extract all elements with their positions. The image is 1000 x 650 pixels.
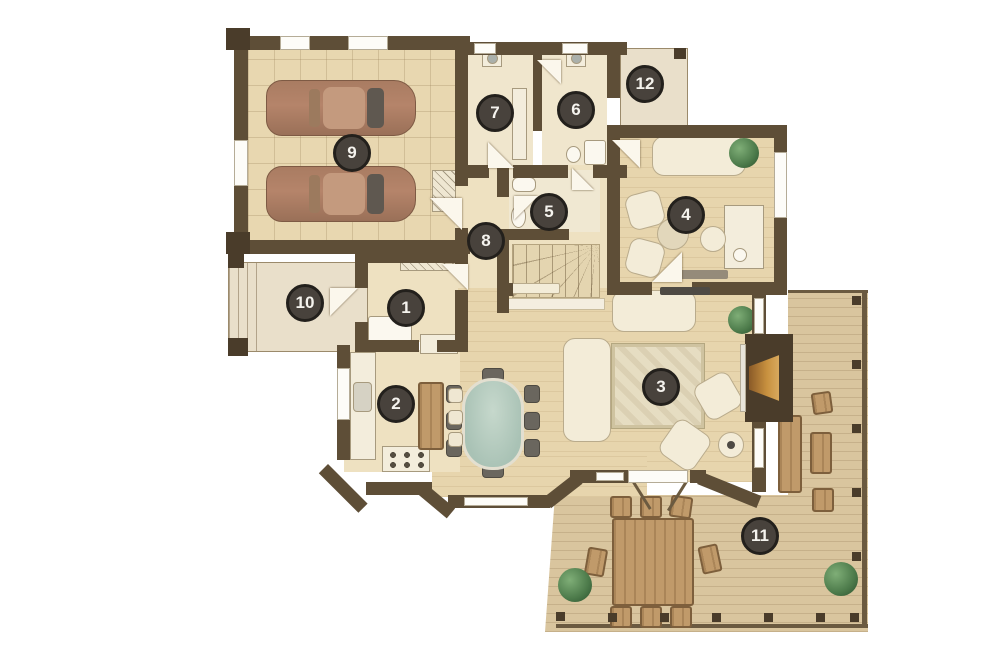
- floor-plan: 123456789101112: [0, 0, 1000, 650]
- outdoor-chair: [670, 606, 692, 628]
- deck-post: [852, 552, 861, 561]
- car-1: [266, 80, 416, 136]
- deck-post: [816, 613, 825, 622]
- car-roof: [323, 87, 365, 129]
- loveseat: [612, 290, 696, 332]
- outdoor-side-table: [812, 488, 834, 512]
- deck-post: [764, 613, 773, 622]
- deck-edge: [862, 290, 867, 628]
- wall-segment: [497, 283, 513, 296]
- deck-post: [850, 613, 859, 622]
- wall-segment: [355, 250, 368, 288]
- window: [754, 428, 764, 468]
- door: [652, 252, 682, 282]
- wall-segment: [513, 165, 568, 178]
- deck-post: [852, 488, 861, 497]
- car-rear-window: [309, 89, 320, 127]
- door: [572, 168, 594, 190]
- room-badge-8: 8: [467, 222, 505, 260]
- bathroom-sink: [512, 177, 536, 192]
- room-badge-12: 12: [626, 65, 664, 103]
- kitchen-island: [418, 382, 444, 450]
- room-badge-11: 11: [741, 517, 779, 555]
- window: [474, 43, 496, 54]
- car-roof: [323, 173, 365, 215]
- dining-table: [462, 378, 524, 470]
- outdoor-bench: [778, 415, 802, 493]
- dining-chair: [524, 412, 540, 430]
- window: [348, 36, 388, 50]
- plant: [824, 562, 858, 596]
- deck-post: [556, 612, 565, 621]
- wall-segment: [455, 165, 489, 178]
- plant: [729, 138, 759, 168]
- console-table: [676, 270, 728, 279]
- deck-edge: [556, 624, 868, 628]
- dining-chair: [524, 439, 540, 457]
- dining-chair: [524, 385, 540, 403]
- car-windshield: [367, 88, 384, 128]
- porch-post: [674, 48, 686, 59]
- window: [596, 472, 624, 481]
- room-badge-10: 10: [286, 284, 324, 322]
- window: [754, 298, 764, 334]
- wall-segment: [437, 340, 468, 352]
- side-table-decor: [727, 441, 735, 449]
- plant: [558, 568, 592, 602]
- console-shelf: [506, 283, 560, 294]
- outdoor-chair: [810, 432, 832, 474]
- window: [774, 152, 787, 218]
- wall-segment: [607, 170, 620, 295]
- stair-landing: [503, 298, 605, 310]
- deck-post: [660, 613, 669, 622]
- french-door-opening: [628, 470, 688, 483]
- bar-stool: [448, 432, 463, 447]
- room-badge-2: 2: [377, 385, 415, 423]
- deck-post: [712, 613, 721, 622]
- deck-post: [852, 424, 861, 433]
- outdoor-chair: [610, 496, 632, 518]
- door: [488, 142, 514, 168]
- deck-post: [608, 613, 617, 622]
- window: [280, 36, 310, 50]
- door: [442, 264, 468, 290]
- bar-stool: [448, 388, 463, 403]
- wall-segment: [455, 250, 468, 264]
- desk-chair: [700, 226, 726, 252]
- wall-segment: [607, 42, 620, 98]
- room-badge-9: 9: [333, 134, 371, 172]
- shower: [584, 140, 606, 165]
- wall-post: [226, 232, 250, 254]
- room-badge-1: 1: [387, 289, 425, 327]
- room-badge-7: 7: [476, 94, 514, 132]
- bar-stool: [448, 410, 463, 425]
- desk-lamp: [733, 248, 747, 262]
- window: [562, 43, 588, 54]
- wall-post: [228, 254, 244, 268]
- door: [537, 60, 561, 84]
- tv-console: [660, 287, 710, 295]
- car-windshield: [367, 174, 384, 214]
- deck-post: [852, 296, 861, 305]
- door: [612, 140, 640, 168]
- room-badge-3: 3: [642, 368, 680, 406]
- fireplace-hearth: [740, 344, 746, 412]
- outdoor-chair: [669, 495, 694, 520]
- kitchen-sink: [353, 382, 372, 412]
- wall-segment: [497, 229, 569, 240]
- cabinet: [512, 88, 527, 160]
- deck-edge: [788, 290, 868, 293]
- wall-segment: [455, 36, 468, 186]
- door: [330, 288, 358, 316]
- outdoor-chair: [640, 606, 662, 628]
- outdoor-dining-table: [612, 518, 694, 606]
- wall-post: [226, 28, 250, 50]
- window: [464, 497, 528, 506]
- car-rear-window: [309, 175, 320, 213]
- sink: [566, 146, 581, 163]
- sofa: [563, 338, 611, 442]
- wall-segment: [497, 165, 509, 197]
- wall-post: [228, 338, 248, 356]
- door: [430, 198, 462, 230]
- window: [234, 140, 248, 186]
- wall-segment: [355, 340, 419, 352]
- room-badge-6: 6: [557, 91, 595, 129]
- room-badge-4: 4: [667, 196, 705, 234]
- car-2: [266, 166, 416, 222]
- wall-segment: [607, 125, 787, 138]
- wall-segment: [355, 250, 468, 263]
- deck-post: [852, 360, 861, 369]
- outdoor-chair: [811, 391, 834, 416]
- room-badge-5: 5: [530, 193, 568, 231]
- window: [337, 368, 350, 420]
